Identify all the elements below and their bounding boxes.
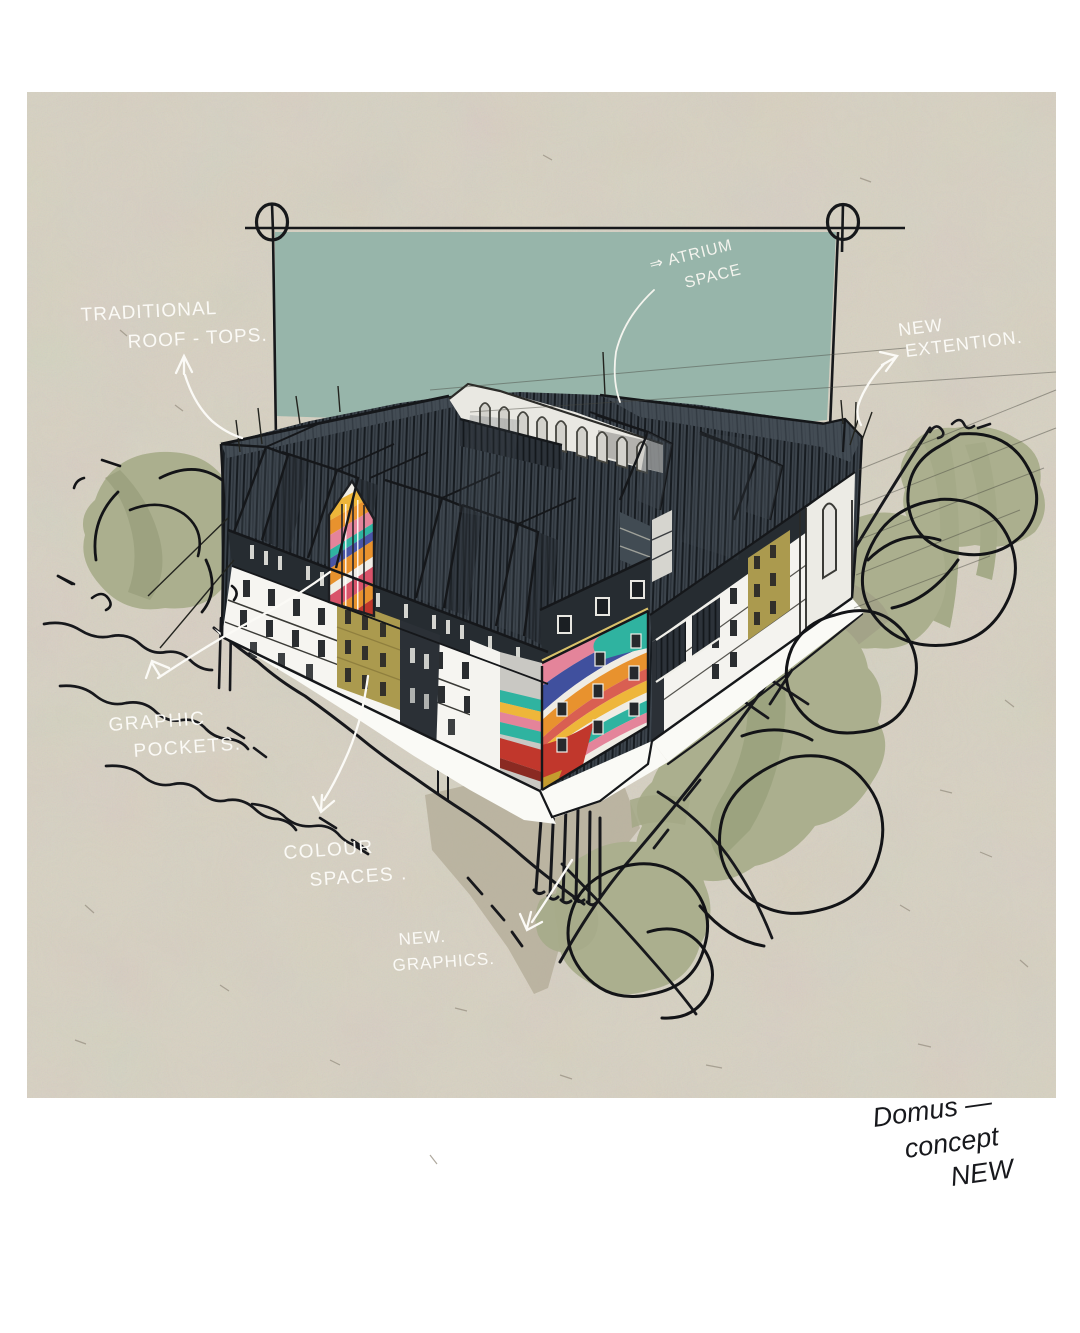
svg-text:NEW.: NEW.	[398, 927, 447, 949]
